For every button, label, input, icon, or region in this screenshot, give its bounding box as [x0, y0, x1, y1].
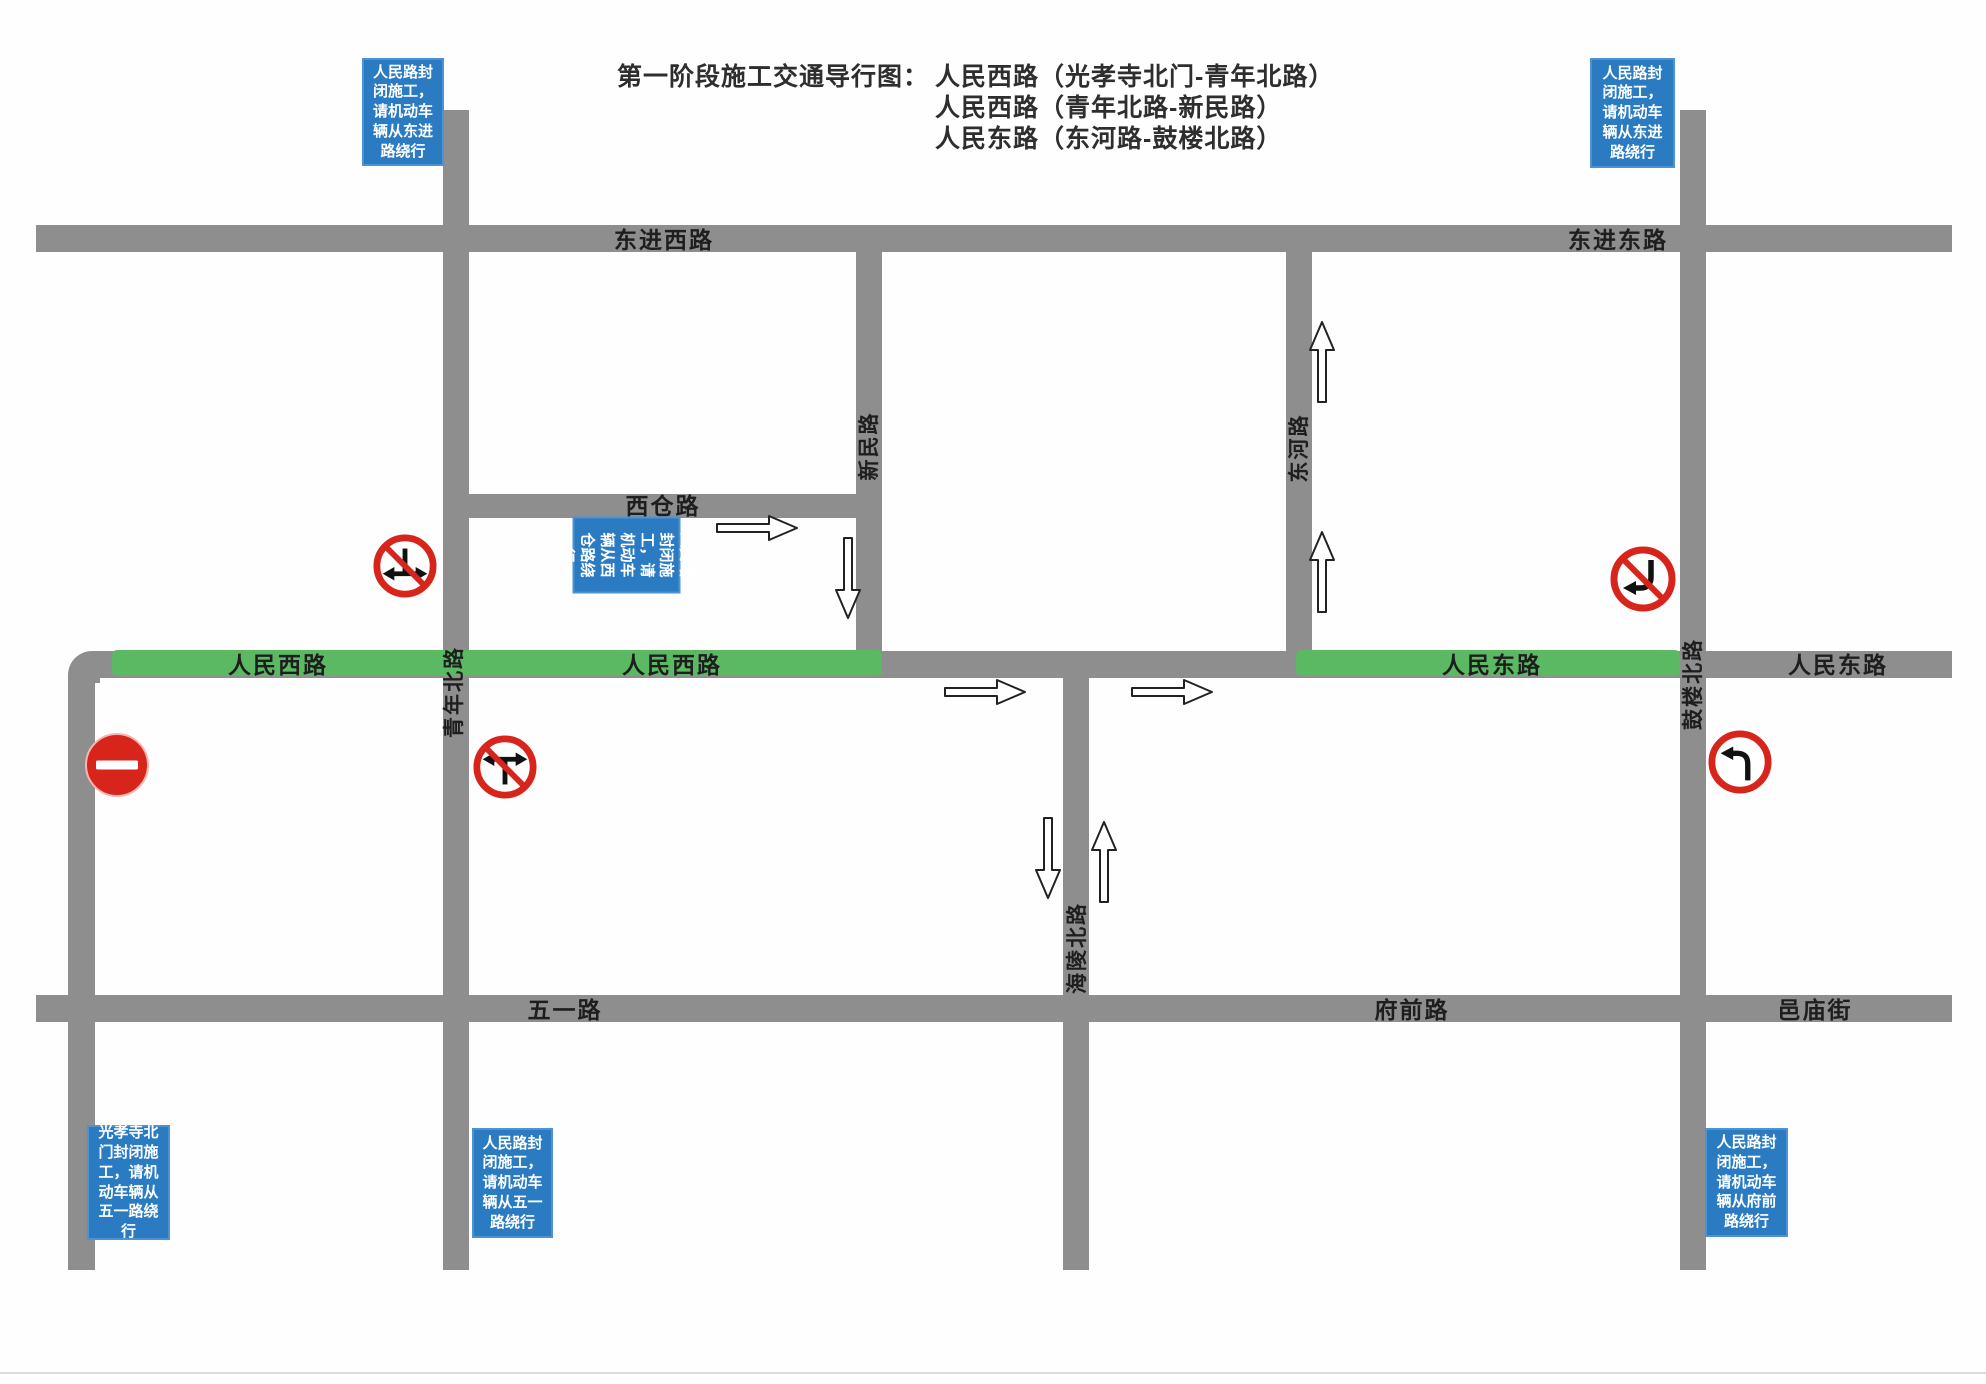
- detour-arrow-north-donghe-lower: [1308, 530, 1336, 614]
- detour-arrow-north-hailing: [1090, 820, 1118, 904]
- notice-board-bottom-right: 人民路封闭施工，请机动车辆从府前路绕行: [1705, 1128, 1788, 1237]
- road-label-renmin-east-1: 人民东路: [1442, 646, 1542, 680]
- road-label-renmin-west-1: 人民西路: [228, 646, 328, 680]
- road-label-donghe: 东河路: [1283, 414, 1313, 483]
- detour-arrow-north-donghe-upper: [1308, 320, 1336, 404]
- road-wuyi-fuqian-yimiao: [36, 995, 1952, 1022]
- closed-route-2: 人民西路（青年北路-新民路）: [935, 93, 1334, 124]
- notice-board-bottom-left: 光孝寺北门封闭施工，请机动车辆从五一路绕行: [87, 1125, 170, 1240]
- closed-route-3: 人民东路（东河路-鼓楼北路）: [935, 124, 1334, 155]
- page-edge-divider: [0, 1372, 1986, 1374]
- road-label-dongjin-east: 东进东路: [1568, 221, 1668, 255]
- notice-board-bottom-mid: 人民路封闭施工，请机动车辆从五一路绕行: [472, 1128, 553, 1238]
- map-title-label: 第一阶段施工交通导行图：: [617, 62, 929, 155]
- no-entry-sign: [84, 732, 150, 798]
- closed-route-1: 人民西路（光孝寺北门-青年北路）: [935, 62, 1334, 93]
- detour-arrow-south-hailing: [1034, 816, 1062, 900]
- notice-board-top-right: 人民路封闭施工，请机动车辆从东进路绕行: [1590, 58, 1675, 168]
- detour-arrow-east-xicang: [715, 514, 799, 542]
- no-left-right-turn-sign: [373, 534, 437, 598]
- no-left-right-turn-sign: [473, 735, 537, 799]
- road-label-wuyi: 五一路: [528, 991, 603, 1025]
- construction-traffic-map: 第一阶段施工交通导行图： 人民西路（光孝寺北门-青年北路） 人民西路（青年北路-…: [0, 0, 1986, 1384]
- road-label-fuqian: 府前路: [1375, 991, 1450, 1025]
- road-label-yimiao: 邑庙街: [1778, 991, 1853, 1025]
- road-label-hailing-bei: 海陵北路: [1061, 902, 1091, 994]
- road-label-dongjin-west: 东进西路: [614, 221, 714, 255]
- road-label-renmin-west-2: 人民西路: [622, 646, 722, 680]
- road-label-renmin-east-2: 人民东路: [1788, 646, 1888, 680]
- detour-arrow-east-renmin-1: [943, 678, 1027, 706]
- left-turn-sign: [1708, 730, 1772, 794]
- detour-arrow-south-xinmin: [834, 536, 862, 620]
- road-label-xinmin: 新民路: [853, 412, 883, 481]
- map-title: 第一阶段施工交通导行图： 人民西路（光孝寺北门-青年北路） 人民西路（青年北路-…: [617, 62, 1334, 155]
- notice-board-top-left: 人民路封闭施工，请机动车辆从东进路绕行: [362, 58, 444, 166]
- road-label-gulou-bei: 鼓楼北路: [1677, 638, 1707, 730]
- detour-arrow-east-renmin-2: [1130, 678, 1214, 706]
- road-label-qingnian-bei: 青年北路: [438, 646, 468, 738]
- notice-board-xicang: 人民路封闭施工，请机动车辆从西仓路绕行: [573, 517, 681, 594]
- no-left-turn-sign: [1610, 546, 1676, 612]
